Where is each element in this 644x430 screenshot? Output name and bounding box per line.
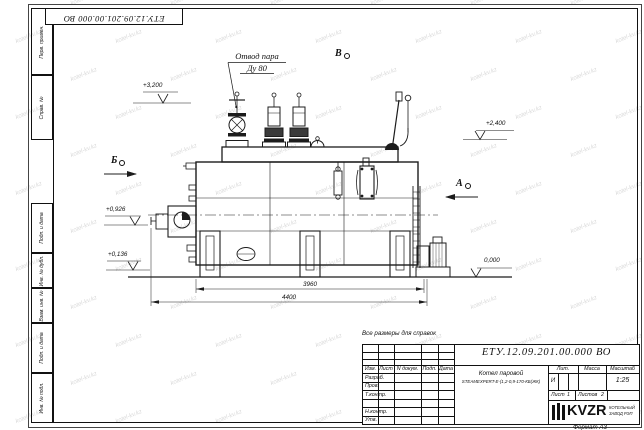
burner — [151, 206, 196, 237]
row-tkontr: Т.контр. — [365, 392, 386, 398]
sheet-value: 1 — [564, 392, 573, 398]
view-circle-b — [119, 160, 125, 166]
top-designation-text: ЕТУ.12.09.201.00.000 ВО — [46, 9, 182, 24]
col-header-massa: Масса — [578, 366, 606, 372]
col-header-lit: Лит. — [548, 366, 578, 372]
elevation-label-0926: +0,926 — [106, 206, 125, 213]
top-designation-box: ЕТУ.12.09.201.00.000 ВО — [45, 8, 183, 25]
feed-pump — [416, 237, 450, 277]
elevation-label-3200: +3,200 — [143, 82, 162, 89]
logo-subtext-1: КОТЕЛЬНЫЙ — [609, 405, 635, 410]
sheets-value: 2 — [598, 392, 607, 398]
col-header-podp: Подп. — [421, 366, 438, 372]
row-prov: Пров. — [365, 383, 379, 389]
callout-text-line1: Отвод пара — [226, 51, 288, 61]
doc-name-line2: STEAMEXPERT-E-(1,2-0,9-170-КБ(ЖК) — [454, 379, 548, 384]
elevation-mark-0136 — [106, 261, 150, 270]
dim-label-inner: 3960 — [296, 281, 324, 288]
elevation-label-2400: +2,400 — [486, 120, 505, 127]
lever-safety-device — [385, 92, 411, 150]
row-nkontr: Н.контр. — [365, 409, 387, 415]
view-circle-v — [344, 53, 350, 59]
lit-value: И — [548, 378, 558, 384]
col-header-izm: Изм. — [363, 366, 378, 372]
view-label-a: А — [456, 178, 471, 189]
boiler-shell — [196, 162, 418, 265]
drawing-sheet: kotel-kv.kzkotel-kv.kzkotel-kv.kzkotel-k… — [0, 0, 644, 430]
level-gauge-small — [334, 162, 342, 199]
elevation-label-zero: 0,000 — [484, 257, 500, 264]
sheets-label: Листов — [578, 392, 597, 398]
col-header-ndokum: N докум. — [394, 366, 421, 372]
elevation-mark-3200 — [133, 92, 191, 103]
logo-text: KVZR — [567, 403, 606, 419]
kvzr-logo-icon — [552, 403, 565, 420]
sheet-label: Лист — [551, 392, 565, 398]
col-header-data: Дата — [438, 366, 454, 372]
steam-drum — [222, 147, 398, 162]
elevation-mark-0926 — [104, 216, 148, 225]
safety-valve-1 — [263, 93, 286, 147]
view-circle-a — [465, 183, 471, 189]
view-label-b: Б — [111, 155, 125, 166]
view-label-v: В — [335, 48, 350, 59]
steam-outlet-valve — [226, 92, 248, 147]
reference-note: Все размеры для справок — [362, 330, 436, 337]
callout-text-line2: Ду 80 — [238, 63, 276, 73]
dim-label-outer: 4400 — [275, 294, 303, 301]
elevation-mark-zero — [471, 268, 512, 277]
col-header-masshtab: Масштаб — [606, 366, 639, 372]
logo-subtext-2: ЗАВОД РЭП — [609, 411, 633, 416]
title-block: ЕТУ.12.09.201.00.000 ВО Изм. Лист N доку… — [362, 344, 640, 425]
view-arrow-b — [104, 171, 137, 177]
level-gauge-large — [357, 158, 378, 199]
row-razrab: Разраб. — [365, 375, 384, 381]
drum-dome — [311, 137, 324, 147]
manhole — [237, 248, 255, 261]
elevation-label-0136: +0,136 — [108, 251, 127, 258]
doc-name-line1: Котел паровой — [454, 370, 548, 377]
support-legs — [200, 231, 410, 277]
titleblock-designation: ЕТУ.12.09.201.00.000 ВО — [454, 347, 639, 364]
col-header-list: Лист — [378, 366, 394, 372]
scale-value: 1:25 — [606, 377, 639, 384]
elevation-mark-2400 — [463, 131, 514, 140]
view-arrow-a — [445, 194, 478, 200]
row-utv: Утв. — [365, 417, 377, 423]
safety-valve-2 — [288, 93, 311, 147]
